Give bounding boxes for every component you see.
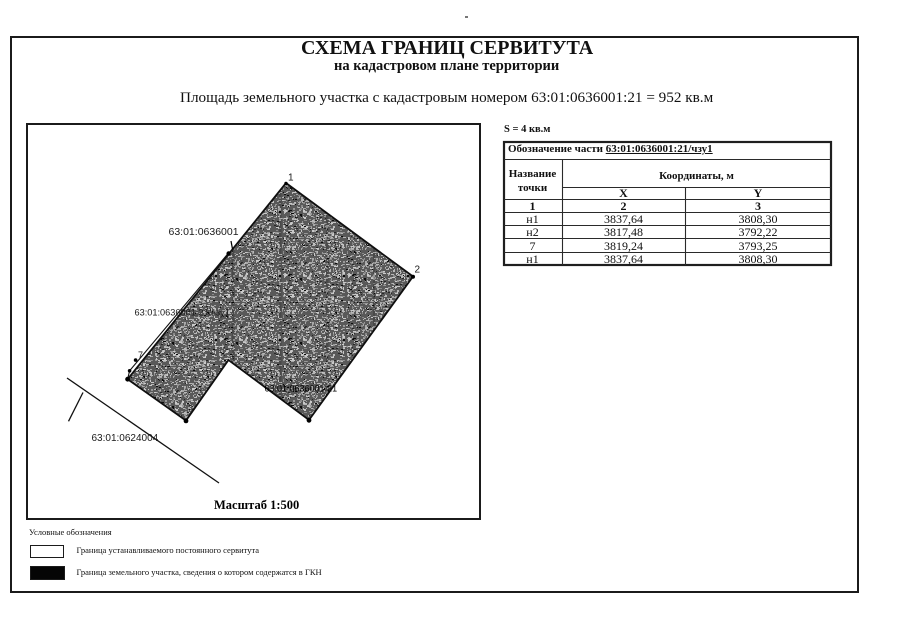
svg-text:63:01:0636001:21/чзу1: 63:01:0636001:21/чзу1 <box>135 308 230 318</box>
svg-text:63:01:0624004: 63:01:0624004 <box>92 433 159 444</box>
svg-text:Масштаб 1:500: Масштаб 1:500 <box>214 498 299 512</box>
svg-text:7: 7 <box>138 350 143 360</box>
svg-text:1: 1 <box>288 173 294 184</box>
svg-text:63:01:0636001:21: 63:01:0636001:21 <box>265 384 338 394</box>
svg-text:2: 2 <box>415 265 421 276</box>
svg-text:63:01:0636001: 63:01:0636001 <box>169 226 239 238</box>
